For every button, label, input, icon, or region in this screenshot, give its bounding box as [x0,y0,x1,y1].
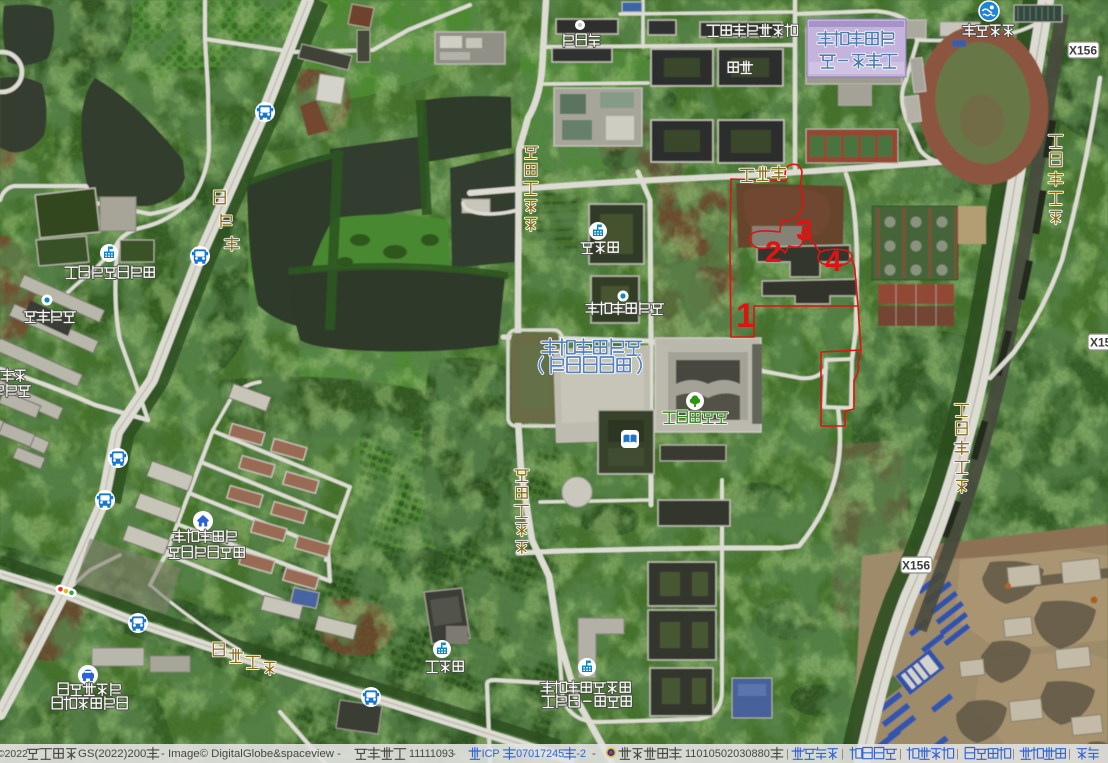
svg-text:-2: -2 [576,748,586,760]
svg-text:11010502030880: 11010502030880 [685,748,770,760]
svg-text:|: | [956,748,959,760]
svg-text:1: 1 [736,297,755,335]
svg-text:4: 4 [825,245,842,278]
svg-text:- Image© DigitalGlobe&spacevie: - Image© DigitalGlobe&spaceview - [161,748,341,760]
svg-text:07017245: 07017245 [516,748,564,760]
svg-text:11111093: 11111093 [409,748,454,760]
svg-text:2: 2 [765,236,782,269]
svg-text:X156: X156 [902,559,930,573]
svg-text:GS(2022)200: GS(2022)200 [78,748,146,760]
svg-text:|: | [786,748,789,760]
svg-text:|: | [1012,748,1015,760]
svg-text:|: | [1068,748,1071,760]
svg-text:ICP: ICP [482,748,500,760]
svg-text:X156: X156 [1069,44,1097,58]
svg-text:|: | [899,748,902,760]
svg-text:3: 3 [796,214,813,247]
svg-text:-: - [592,748,596,760]
svg-text:|: | [841,748,844,760]
svg-text:©2022: ©2022 [0,749,28,760]
svg-text:-: - [452,748,456,760]
svg-text:X156: X156 [1090,336,1108,350]
